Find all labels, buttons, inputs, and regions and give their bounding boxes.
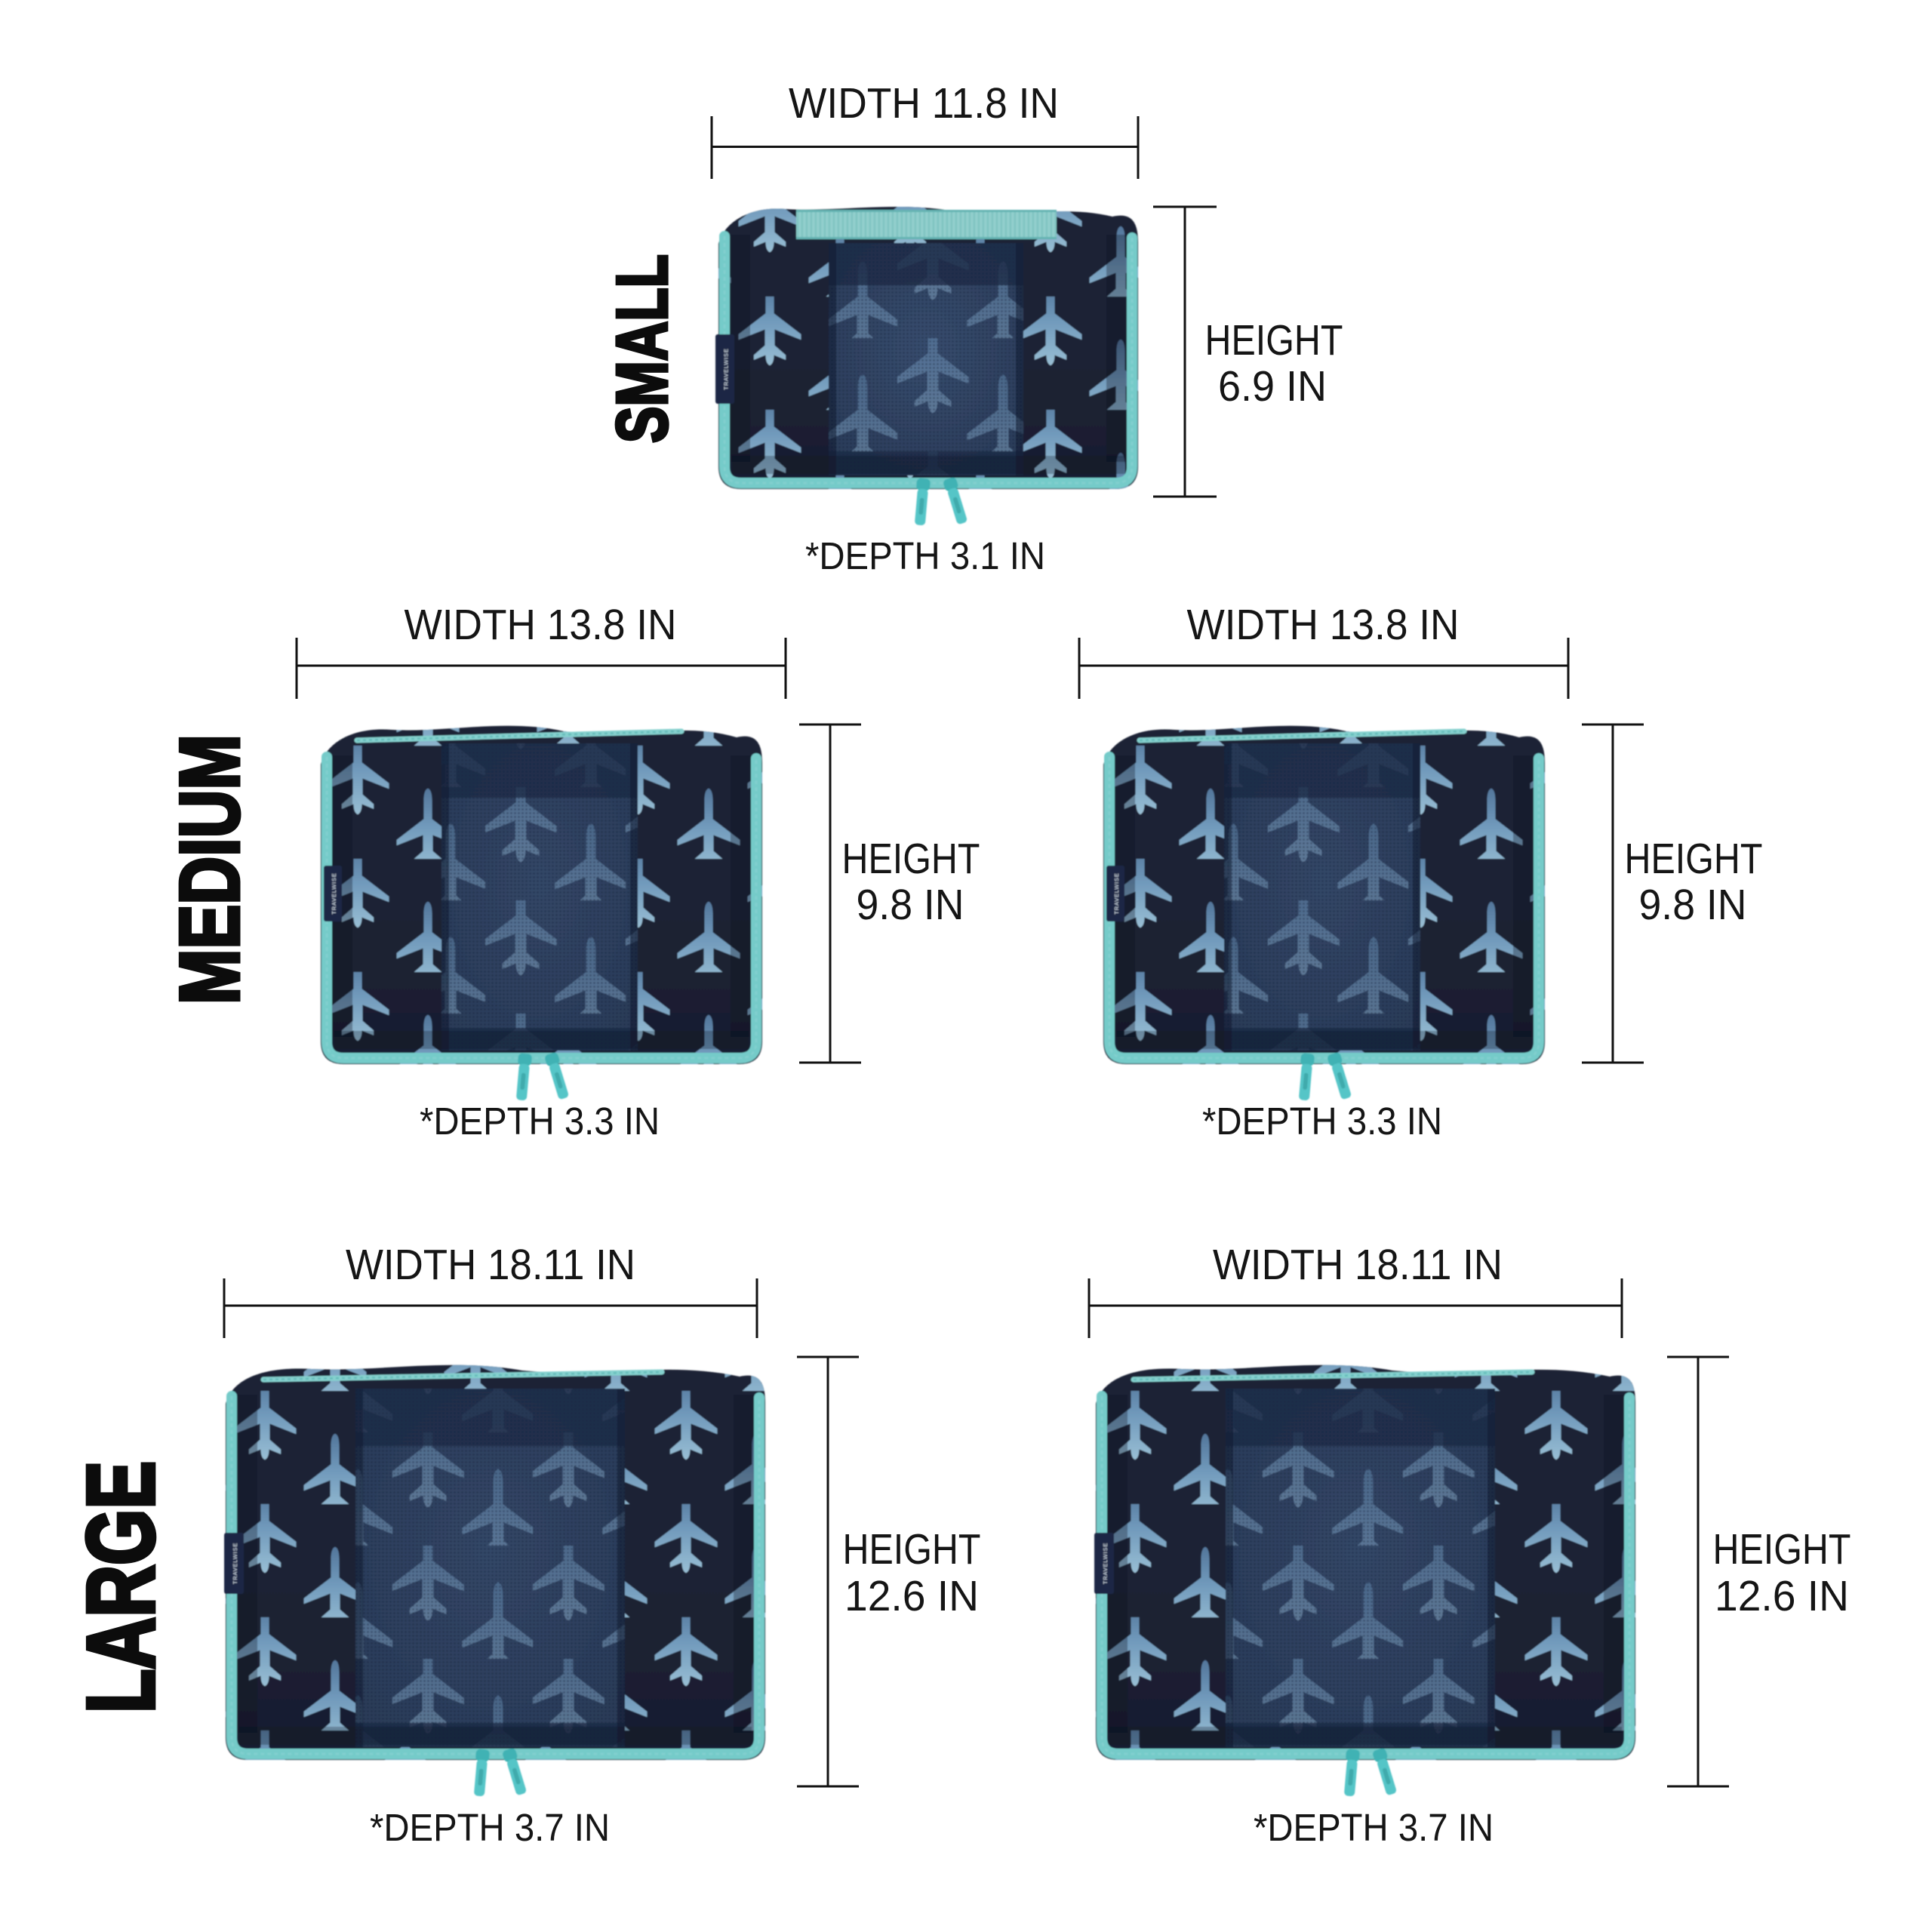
svg-text:*DEPTH 3.3 IN: *DEPTH 3.3 IN — [1202, 1100, 1442, 1143]
svg-text:12.6 IN: 12.6 IN — [1715, 1572, 1849, 1620]
svg-text:*DEPTH 3.3 IN: *DEPTH 3.3 IN — [420, 1100, 660, 1143]
svg-text:HEIGHT: HEIGHT — [842, 835, 980, 883]
svg-text:TRAVELWISE: TRAVELWISE — [232, 1543, 238, 1584]
svg-text:HEIGHT: HEIGHT — [1205, 316, 1343, 365]
svg-text:HEIGHT: HEIGHT — [843, 1525, 981, 1574]
svg-text:WIDTH 18.11 IN: WIDTH 18.11 IN — [346, 1241, 635, 1289]
svg-text:TRAVELWISE: TRAVELWISE — [1113, 872, 1120, 914]
svg-text:HEIGHT: HEIGHT — [1713, 1525, 1851, 1574]
svg-text:9.8 IN: 9.8 IN — [857, 881, 964, 929]
svg-text:6.9 IN: 6.9 IN — [1218, 362, 1327, 411]
svg-text:TRAVELWISE: TRAVELWISE — [723, 348, 730, 389]
svg-text:12.6 IN: 12.6 IN — [844, 1572, 979, 1620]
svg-text:HEIGHT: HEIGHT — [1625, 835, 1763, 883]
svg-text:*DEPTH 3.7 IN: *DEPTH 3.7 IN — [370, 1806, 610, 1849]
svg-text:*DEPTH 3.7 IN: *DEPTH 3.7 IN — [1254, 1806, 1494, 1849]
svg-text:SMALL: SMALL — [602, 254, 683, 443]
svg-text:*DEPTH 3.1 IN: *DEPTH 3.1 IN — [805, 534, 1045, 577]
svg-text:WIDTH 18.11 IN: WIDTH 18.11 IN — [1213, 1241, 1503, 1289]
svg-text:9.8 IN: 9.8 IN — [1639, 881, 1747, 929]
svg-text:LARGE: LARGE — [68, 1461, 174, 1713]
svg-text:WIDTH 11.8 IN: WIDTH 11.8 IN — [789, 79, 1059, 128]
svg-text:MEDIUM: MEDIUM — [163, 734, 257, 1004]
svg-text:TRAVELWISE: TRAVELWISE — [1102, 1543, 1109, 1584]
svg-text:WIDTH 13.8 IN: WIDTH 13.8 IN — [405, 601, 677, 649]
svg-text:TRAVELWISE: TRAVELWISE — [331, 872, 337, 914]
svg-text:WIDTH 13.8 IN: WIDTH 13.8 IN — [1187, 601, 1460, 649]
